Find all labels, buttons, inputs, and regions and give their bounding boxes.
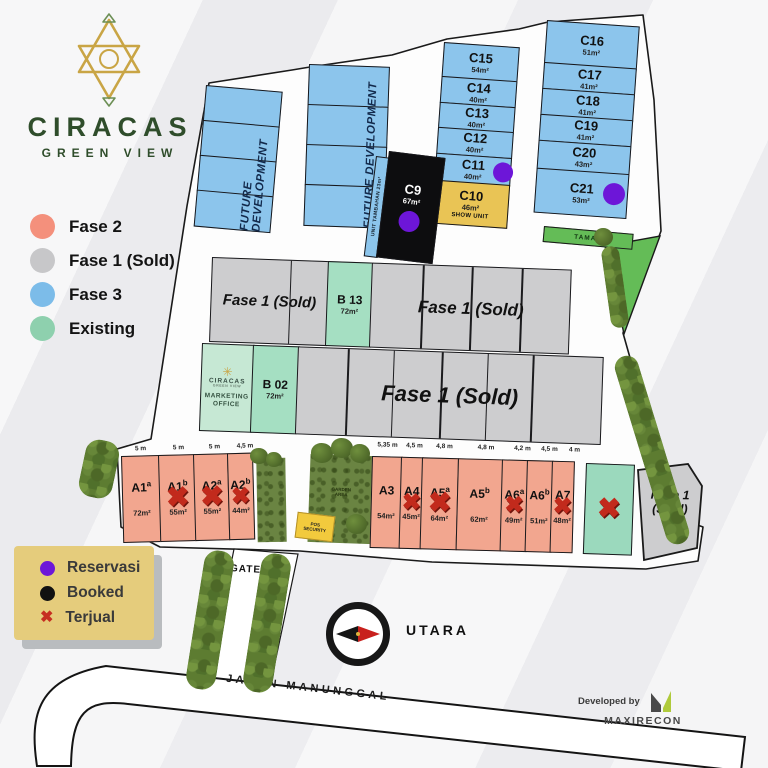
reservasi-dot-icon bbox=[397, 210, 420, 233]
reservasi-label: Reservasi bbox=[67, 559, 140, 577]
gate-label: GATE bbox=[230, 563, 262, 576]
reservasi-dot-icon bbox=[492, 161, 513, 182]
plot-fase1-sold-top-right: Fase 1 (Sold) bbox=[369, 263, 572, 355]
fase2-label: Fase 2 bbox=[69, 217, 122, 237]
site-plan-canvas: CIRACAS GREEN VIEW Fase 2 Fase 1 (Sold) … bbox=[0, 0, 768, 768]
terjual-x-icon: ✖ bbox=[231, 484, 251, 507]
compass-label: UTARA bbox=[406, 622, 469, 638]
terjual-x-icon: ✖ bbox=[200, 482, 224, 511]
plot-a7: A7 48m² ✖ bbox=[550, 461, 575, 554]
legend-row-fase1: Fase 1 (Sold) bbox=[30, 248, 175, 273]
plot-a2a: A2a 55m² ✖ bbox=[193, 453, 230, 541]
plot-a8: A8 ✖ bbox=[583, 463, 635, 556]
brand-star-icon bbox=[66, 12, 152, 108]
middle-row-1: Fase 1 (Sold) B 13 72m² Fase 1 (Sold) bbox=[209, 257, 576, 355]
a-row-right: A3 54m² A4 45m² ✖ A5a 64m² ✖ A5b 62m² A6… bbox=[370, 456, 586, 554]
plot-c10-show-unit: C10 46m² SHOW UNIT bbox=[431, 180, 510, 229]
terjual-x-icon: ✖ bbox=[40, 610, 53, 626]
existing-color-swatch bbox=[30, 316, 55, 341]
compass bbox=[326, 602, 390, 666]
terjual-x-icon: ✖ bbox=[166, 483, 190, 512]
plot-b13: B 13 72m² bbox=[325, 261, 374, 348]
c-column-left: C15 54m² C14 40m² C13 40m² C12 40m² C11 … bbox=[431, 42, 520, 229]
legend-row-reservasi: Reservasi bbox=[40, 559, 154, 577]
plot-fase1-sold-bottom: Fase 1 (Sold) bbox=[295, 346, 604, 445]
marketing-office: ✳ CIRACAS GREEN VIEW MARKETING OFFICE bbox=[199, 343, 255, 433]
developer-credit: Developed by MAXIRECON bbox=[578, 688, 708, 727]
legend-row-fase2: Fase 2 bbox=[30, 214, 175, 239]
compass-needle-icon bbox=[336, 623, 380, 645]
status-legend-card: Reservasi Booked ✖ Terjual bbox=[14, 546, 154, 640]
plot-a5a: A5a 64m² ✖ bbox=[420, 457, 459, 550]
garden-strip bbox=[256, 458, 286, 542]
brand-name: CIRACAS bbox=[22, 112, 198, 143]
brand-tagline: GREEN VIEW bbox=[22, 146, 198, 160]
booked-label: Booked bbox=[67, 584, 124, 602]
garden-label: GARDEN AREA bbox=[331, 486, 351, 497]
legend-row-terjual: ✖ Terjual bbox=[40, 609, 154, 627]
legend-row-booked: Booked bbox=[40, 584, 154, 602]
phase-legend: Fase 2 Fase 1 (Sold) Fase 3 Existing bbox=[30, 214, 175, 341]
reservasi-dot-icon bbox=[602, 182, 625, 205]
plot-a1a: A1a 72m² bbox=[121, 455, 162, 543]
developer-name: MAXIRECON bbox=[578, 715, 708, 727]
legend-row-fase3: Fase 3 bbox=[30, 282, 175, 307]
fase3-color-swatch bbox=[30, 282, 55, 307]
middle-row-2: ✳ CIRACAS GREEN VIEW MARKETING OFFICE B … bbox=[199, 343, 608, 445]
fase2-color-swatch bbox=[30, 214, 55, 239]
terjual-x-icon: ✖ bbox=[428, 488, 452, 517]
terjual-x-icon: ✖ bbox=[553, 494, 573, 517]
existing-label: Existing bbox=[69, 319, 135, 339]
a-row-left: A1a 72m² A1b 55m² ✖ A2a 55m² ✖ A2b 44m² … bbox=[121, 452, 260, 543]
maxirecon-logo-icon bbox=[648, 688, 674, 714]
plot-a2b: A2b 44m² ✖ bbox=[227, 453, 255, 541]
terjual-label: Terjual bbox=[65, 609, 115, 627]
booked-dot-icon bbox=[40, 586, 55, 601]
c-column-right: C16 51m² C17 41m² C18 41m² C19 41m² C20 … bbox=[534, 20, 640, 219]
plot-fase1-sold-top-left: Fase 1 (Sold) bbox=[209, 257, 330, 346]
terjual-x-icon: ✖ bbox=[504, 493, 524, 516]
reservasi-dot-icon bbox=[40, 561, 55, 576]
pos-security: POS SECURITY bbox=[295, 512, 336, 542]
plot-b02: B 02 72m² bbox=[250, 345, 300, 435]
fase1-label: Fase 1 (Sold) bbox=[69, 251, 175, 271]
fase3-label: Fase 3 bbox=[69, 285, 122, 305]
plot-a3: A3 54m² bbox=[370, 456, 403, 549]
plot-c21: C21 53m² bbox=[534, 168, 630, 219]
plot-a1b: A1b 55m² ✖ bbox=[158, 454, 197, 542]
legend-row-existing: Existing bbox=[30, 316, 175, 341]
plot-a5b: A5b 62m² bbox=[455, 458, 503, 551]
fase1-color-swatch bbox=[30, 248, 55, 273]
future-development-block-1: FUTURE DEVELOPMENT bbox=[194, 85, 283, 233]
terjual-x-icon: ✖ bbox=[597, 494, 621, 523]
marketing-office-star-icon: ✳ bbox=[222, 366, 232, 378]
terjual-x-icon: ✖ bbox=[402, 490, 422, 513]
